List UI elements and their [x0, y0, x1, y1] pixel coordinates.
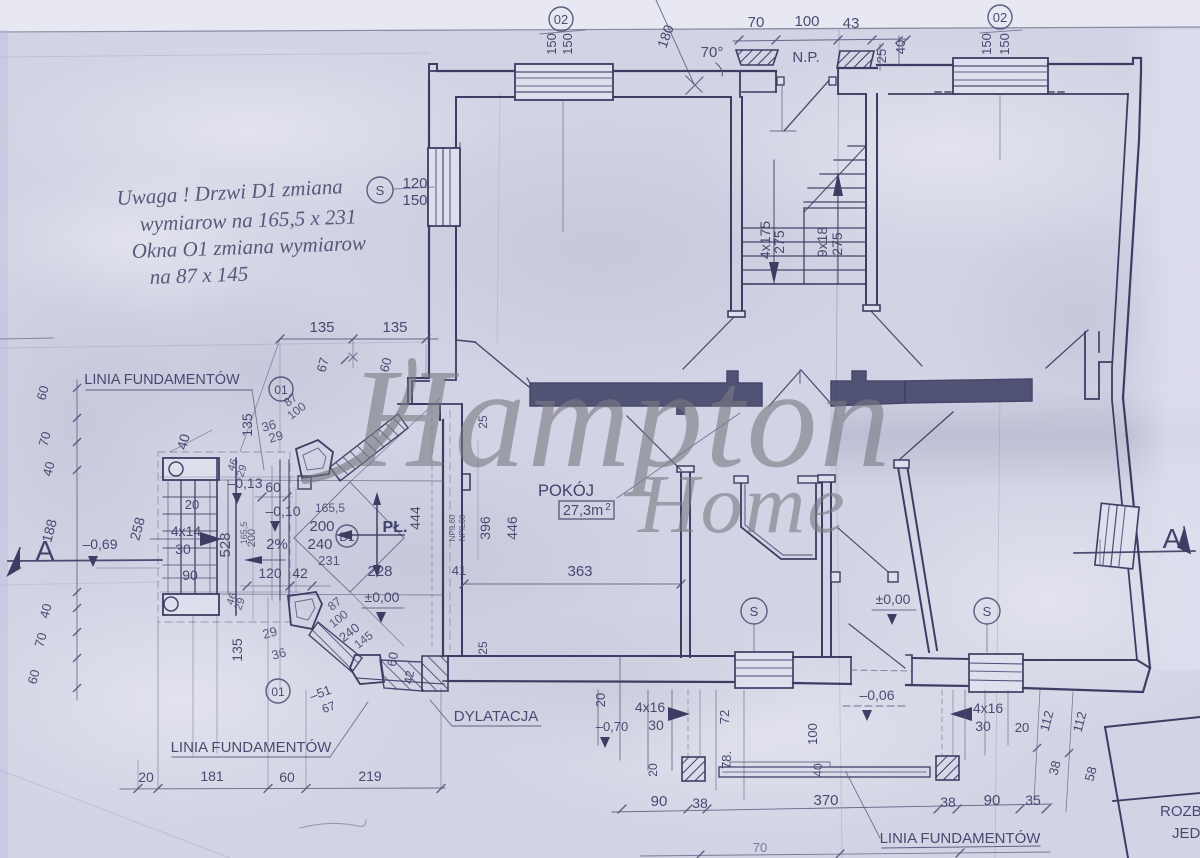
- svg-text:S: S: [376, 183, 385, 198]
- svg-text:02: 02: [993, 10, 1007, 25]
- svg-text:2: 2: [605, 502, 611, 513]
- svg-text:–0,10: –0,10: [265, 503, 300, 519]
- svg-text:78.: 78.: [719, 751, 734, 769]
- svg-text:70: 70: [753, 840, 767, 855]
- svg-text:ROZBU: ROZBU: [1160, 803, 1200, 820]
- svg-text:231: 231: [318, 553, 340, 568]
- svg-text:228: 228: [367, 563, 392, 580]
- svg-text:25: 25: [476, 641, 490, 655]
- svg-text:181: 181: [200, 768, 224, 784]
- svg-text:20: 20: [138, 769, 154, 785]
- svg-text:60: 60: [279, 769, 295, 785]
- svg-text:150: 150: [402, 192, 427, 209]
- svg-text:150: 150: [979, 33, 994, 55]
- svg-text:370: 370: [813, 792, 838, 809]
- svg-text:Home: Home: [637, 458, 847, 551]
- svg-text:DYLATACJA: DYLATACJA: [454, 708, 538, 725]
- svg-text:LINIA FUNDAMENTÓW: LINIA FUNDAMENTÓW: [171, 739, 333, 756]
- svg-text:70: 70: [748, 14, 765, 31]
- svg-text:200: 200: [309, 518, 334, 535]
- svg-text:70°: 70°: [701, 44, 724, 61]
- svg-text:S: S: [983, 604, 992, 619]
- svg-text:S: S: [750, 604, 759, 619]
- svg-text:–0,06: –0,06: [859, 687, 894, 703]
- svg-text:135: 135: [229, 638, 245, 662]
- svg-text:100: 100: [794, 13, 819, 30]
- svg-text:200: 200: [246, 529, 258, 547]
- svg-text:na 87 x 145: na 87 x 145: [149, 262, 248, 289]
- svg-text:41: 41: [452, 563, 466, 578]
- svg-text:25: 25: [874, 49, 889, 63]
- svg-text:A: A: [1163, 523, 1182, 554]
- svg-text:135: 135: [239, 413, 255, 437]
- svg-text:150: 150: [544, 33, 559, 55]
- svg-text:38: 38: [692, 795, 708, 811]
- svg-text:135: 135: [382, 319, 407, 336]
- svg-text:01: 01: [271, 685, 285, 699]
- svg-text:LINIA FUNDAMENTÓW: LINIA FUNDAMENTÓW: [880, 830, 1042, 847]
- svg-text:N.P.: N.P.: [792, 49, 819, 66]
- svg-text:120: 120: [258, 565, 282, 581]
- svg-text:9x18: 9x18: [814, 227, 830, 258]
- svg-text:PŁ.: PŁ.: [383, 519, 408, 536]
- svg-text:219: 219: [358, 768, 382, 784]
- svg-text:396: 396: [477, 516, 493, 540]
- svg-text:20: 20: [1015, 720, 1029, 735]
- svg-text:±0,00: ±0,00: [365, 589, 400, 605]
- svg-text:90: 90: [651, 793, 668, 810]
- svg-text:60: 60: [265, 479, 281, 495]
- svg-text:72: 72: [717, 710, 732, 724]
- svg-text:135: 135: [309, 319, 334, 336]
- svg-text:100: 100: [805, 723, 820, 745]
- svg-text:20: 20: [185, 497, 199, 512]
- svg-text:43: 43: [843, 15, 860, 32]
- svg-text:02: 02: [554, 12, 568, 27]
- svg-text:120: 120: [402, 175, 427, 192]
- svg-text:240: 240: [307, 536, 332, 553]
- svg-text:JED: JED: [1172, 825, 1200, 842]
- svg-text:363: 363: [567, 563, 592, 580]
- svg-text:2%: 2%: [266, 536, 288, 553]
- svg-text:90: 90: [984, 792, 1001, 809]
- svg-text:444: 444: [407, 506, 423, 530]
- svg-text:40: 40: [893, 40, 908, 54]
- svg-text:NPIŁ60: NPIŁ60: [458, 514, 467, 541]
- svg-text:30: 30: [648, 717, 664, 733]
- svg-text:60: 60: [384, 651, 401, 668]
- svg-text:4x14: 4x14: [171, 523, 202, 539]
- svg-text:90: 90: [182, 567, 198, 583]
- svg-text:NPIŁ60: NPIŁ60: [448, 514, 457, 541]
- svg-text:275: 275: [829, 232, 845, 256]
- svg-text:20: 20: [646, 763, 660, 777]
- svg-text:30: 30: [975, 718, 991, 734]
- svg-text:150: 150: [997, 33, 1012, 55]
- svg-text:38: 38: [940, 794, 956, 810]
- svg-text:30: 30: [175, 541, 191, 557]
- svg-text:150: 150: [560, 33, 575, 55]
- svg-text:42: 42: [292, 565, 308, 581]
- svg-text:–0,70: –0,70: [596, 719, 629, 734]
- svg-text:LINIA FUNDAMENTÓW: LINIA FUNDAMENTÓW: [84, 371, 240, 388]
- svg-text:A: A: [36, 535, 55, 566]
- svg-text:446: 446: [504, 516, 520, 540]
- svg-text:27,3m: 27,3m: [563, 503, 603, 519]
- svg-text:275: 275: [771, 230, 787, 254]
- svg-text:40: 40: [811, 763, 825, 777]
- svg-text:528: 528: [217, 532, 234, 557]
- svg-text:4x16: 4x16: [635, 699, 666, 715]
- svg-text:35: 35: [1025, 792, 1041, 808]
- svg-text:165,5: 165,5: [315, 501, 345, 515]
- svg-text:±0,00: ±0,00: [876, 591, 911, 607]
- svg-text:–0,69: –0,69: [82, 536, 117, 552]
- svg-text:4x16: 4x16: [973, 700, 1004, 716]
- svg-text:42: 42: [401, 669, 417, 685]
- svg-text:20: 20: [593, 693, 608, 707]
